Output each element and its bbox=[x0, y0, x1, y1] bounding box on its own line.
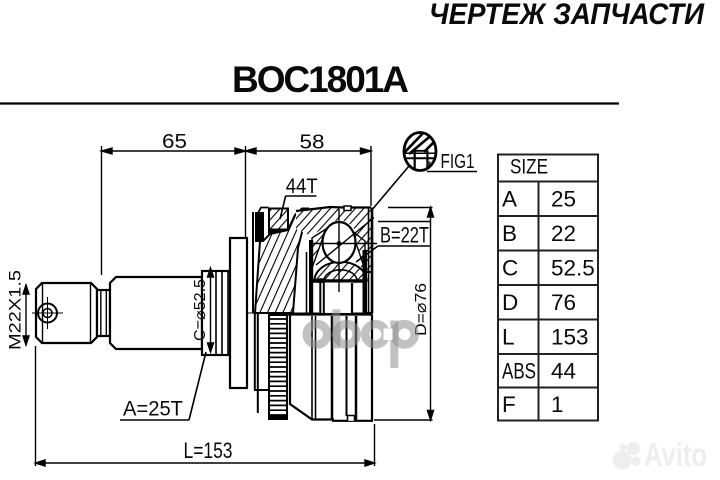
svg-text:A=25T: A=25T bbox=[123, 396, 183, 420]
svg-text:22: 22 bbox=[551, 221, 576, 246]
svg-text:44: 44 bbox=[551, 359, 576, 384]
svg-text:D: D bbox=[502, 290, 518, 315]
svg-text:1: 1 bbox=[551, 392, 564, 417]
svg-text:B: B bbox=[502, 221, 517, 246]
svg-text:A: A bbox=[502, 187, 517, 212]
svg-text:58: 58 bbox=[300, 131, 325, 154]
svg-text:52.5: 52.5 bbox=[551, 256, 595, 281]
svg-text:F: F bbox=[502, 392, 516, 417]
svg-text:25: 25 bbox=[551, 187, 576, 212]
svg-text:153: 153 bbox=[551, 325, 589, 350]
svg-text:65: 65 bbox=[162, 130, 187, 153]
svg-text:SIZE: SIZE bbox=[510, 156, 548, 179]
svg-text:FIG1: FIG1 bbox=[441, 151, 475, 173]
svg-text:Avito: Avito bbox=[644, 436, 707, 473]
svg-text:ЧЕРТЕЖ ЗАПЧАСТИ: ЧЕРТЕЖ ЗАПЧАСТИ bbox=[429, 0, 705, 31]
svg-text:BOC1801A: BOC1801A bbox=[232, 59, 409, 100]
svg-text:ABS: ABS bbox=[502, 359, 536, 384]
svg-text:44T: 44T bbox=[286, 174, 318, 198]
svg-text:B=22T: B=22T bbox=[380, 223, 429, 248]
svg-text:C=⌀52.5: C=⌀52.5 bbox=[192, 279, 209, 341]
svg-text:L: L bbox=[502, 325, 515, 350]
svg-text:M22X1.5: M22X1.5 bbox=[6, 270, 25, 350]
svg-text:76: 76 bbox=[551, 290, 576, 315]
svg-text:L=153: L=153 bbox=[184, 438, 233, 463]
svg-text:C: C bbox=[502, 256, 518, 281]
